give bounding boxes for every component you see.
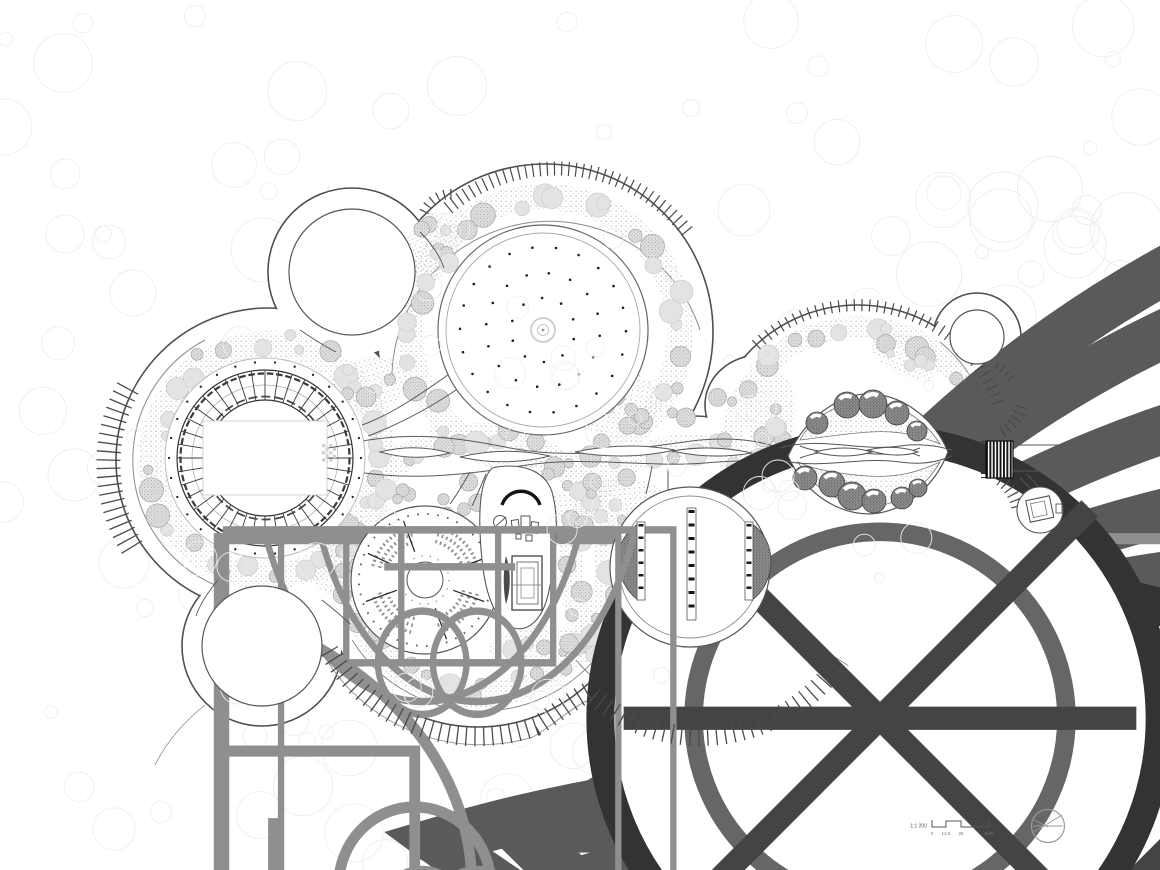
tree-canopy	[515, 201, 530, 216]
tree-canopy	[904, 360, 916, 372]
tree-canopy	[0, 99, 32, 155]
tree-canopy	[557, 12, 577, 32]
column-dot	[254, 361, 256, 363]
column-dot	[358, 437, 360, 439]
column-dot	[254, 552, 256, 554]
fountain-jet	[485, 323, 488, 326]
tree-canopy	[320, 341, 341, 362]
fountain-jet	[572, 338, 575, 341]
tree-canopy	[1112, 89, 1160, 145]
tree-canopy	[968, 172, 1038, 242]
tree-canopy	[564, 458, 574, 468]
tree-canopy	[619, 417, 636, 434]
paver	[326, 448, 329, 451]
fountain-jet	[596, 312, 599, 315]
tree-canopy	[264, 139, 299, 174]
fountain-plaza	[438, 225, 648, 435]
tree-canopy	[718, 184, 770, 236]
tree-canopy	[393, 494, 403, 504]
fountain-jet	[515, 379, 518, 382]
tree-canopy	[398, 313, 417, 332]
tree-canopy	[758, 345, 779, 366]
fountain-jet	[487, 345, 490, 348]
tree-canopy	[139, 478, 163, 502]
fountain-jet	[560, 302, 563, 305]
tree-canopy	[808, 330, 825, 347]
fountain-jet	[598, 335, 601, 338]
tree-canopy	[261, 183, 278, 200]
column-dot	[186, 400, 188, 402]
fountain-jet	[558, 383, 561, 386]
fountain-jet	[586, 293, 589, 296]
tree-canopy	[566, 609, 579, 622]
tree-canopy	[915, 355, 928, 368]
tree-canopy	[926, 16, 983, 73]
tree-canopy	[831, 325, 847, 341]
tree-canopy	[373, 93, 409, 129]
tree-canopy	[150, 801, 171, 822]
fountain-jet	[522, 303, 525, 306]
tree-canopy	[990, 38, 1039, 87]
tree-canopy	[95, 226, 111, 242]
tree-canopy	[45, 706, 57, 718]
column-dot	[360, 457, 362, 459]
tree-canopy	[417, 274, 434, 291]
column-dot	[170, 437, 172, 439]
fountain-jet	[555, 247, 558, 250]
column-dot	[342, 400, 344, 402]
paver	[329, 451, 332, 454]
fountain-jet	[462, 304, 465, 307]
column-dot	[176, 496, 178, 498]
paver	[322, 458, 325, 461]
fountain-jet	[488, 265, 491, 268]
tree-canopy	[136, 599, 153, 616]
tree-canopy	[384, 374, 395, 385]
tree-canopy	[414, 221, 430, 237]
fountain-jet	[525, 274, 528, 277]
court-apron	[203, 421, 327, 495]
column-dot	[312, 374, 314, 376]
fountain-jet	[508, 253, 511, 256]
tree-canopy	[92, 225, 126, 259]
fountain-jet	[462, 351, 465, 354]
tree-canopy	[609, 457, 620, 468]
scale-text: 1:1 200	[910, 824, 927, 830]
tree-canopy	[594, 509, 607, 522]
fountain-jet	[543, 361, 546, 364]
entrance-bridge	[986, 441, 1013, 478]
fountain-jet	[536, 385, 539, 388]
column-dot	[186, 513, 188, 515]
fountain-jet	[471, 373, 474, 376]
column-dot	[234, 366, 236, 368]
fountain-jet	[595, 392, 598, 395]
column-dot	[168, 457, 170, 459]
tree-canopy	[618, 469, 635, 486]
paver	[333, 455, 336, 458]
tree-canopy	[34, 34, 92, 92]
tree-canopy	[0, 32, 13, 46]
tree-canopy	[676, 408, 695, 427]
tree-canopy	[717, 433, 731, 447]
fountain-jet	[531, 246, 534, 249]
scale-tick-label: 25	[958, 831, 964, 836]
fountain-jet	[552, 411, 555, 414]
fountain-jet	[498, 365, 501, 368]
tree-canopy	[458, 503, 471, 516]
paver	[322, 444, 325, 447]
tree-canopy	[727, 397, 736, 406]
drawing-sheet: 1:1 200 0 12.5 25 50m	[0, 0, 1160, 870]
fountain-jet	[506, 285, 509, 288]
fountain-jet	[561, 354, 564, 357]
paver	[326, 455, 329, 458]
tree-canopy	[184, 5, 206, 27]
tree-canopy	[460, 473, 478, 491]
kiosk-pavilion	[1017, 487, 1063, 533]
tree-canopy	[428, 57, 487, 116]
fountain-jet	[569, 279, 572, 282]
tree-canopy	[254, 339, 272, 357]
tree-canopy	[437, 426, 448, 437]
tree-canopy	[1072, 0, 1133, 57]
tree-canopy	[896, 241, 961, 306]
fountain-jet	[577, 254, 580, 257]
tree-canopy	[438, 494, 449, 505]
fountain-jet	[575, 405, 578, 408]
tree-canopy	[527, 433, 544, 450]
column-dot	[294, 366, 296, 368]
tree-canopy	[808, 56, 828, 76]
tree-canopy	[597, 125, 612, 140]
paver	[329, 444, 332, 447]
tree-canopy	[1083, 141, 1097, 155]
fountain-jet	[541, 297, 544, 300]
fountain-jet	[548, 272, 551, 275]
fountain-jet	[512, 339, 515, 342]
tree-canopy	[48, 449, 100, 501]
tree-canopy	[411, 292, 434, 315]
fountain-jet	[506, 404, 509, 407]
fountain-jet	[486, 391, 489, 394]
paver	[329, 458, 332, 461]
fountain-jet	[524, 355, 527, 358]
fountain-jet	[459, 328, 462, 331]
tree-canopy	[788, 333, 802, 347]
tree-canopy	[427, 389, 450, 412]
scale-tick-label: 0	[931, 831, 934, 836]
tree-canopy	[814, 119, 859, 164]
fountain-jet	[625, 330, 628, 333]
fountain-jet	[621, 353, 624, 356]
tree-canopy	[400, 355, 415, 370]
tree-canopy	[787, 103, 808, 124]
tree-canopy	[186, 534, 203, 551]
tree-canopy	[238, 556, 258, 576]
tree-canopy	[629, 229, 642, 242]
fountain-jet	[511, 320, 514, 323]
tree-canopy	[709, 389, 727, 407]
tree-canopy	[143, 465, 153, 475]
fountain-jet	[473, 283, 476, 286]
tree-canopy	[744, 0, 799, 48]
tree-canopy	[64, 772, 94, 802]
tree-canopy	[511, 727, 531, 747]
tree-canopy	[19, 387, 66, 434]
column-dot	[328, 386, 330, 388]
paver	[333, 448, 336, 451]
tree-canopy	[146, 504, 170, 528]
tree-canopy	[872, 217, 911, 256]
tree-canopy	[672, 383, 684, 395]
tree-canopy	[881, 323, 892, 334]
column-dot	[294, 548, 296, 550]
tree-canopy	[587, 489, 597, 499]
pavilion-building	[512, 556, 542, 610]
fountain-jet	[597, 267, 600, 270]
column-dot	[358, 477, 360, 479]
tree-canopy	[1044, 216, 1106, 278]
column-dot	[216, 374, 218, 376]
tree-canopy	[645, 257, 662, 274]
tree-canopy	[1018, 157, 1083, 222]
column-dot	[200, 386, 202, 388]
column-dot	[274, 361, 276, 363]
paver	[322, 451, 325, 454]
tree-canopy	[641, 234, 665, 258]
column-dot	[352, 496, 354, 498]
tree-canopy	[542, 187, 563, 208]
tree-canopy	[73, 13, 93, 33]
column-dot	[176, 418, 178, 420]
fountain-jet	[572, 318, 575, 321]
tree-canopy	[46, 215, 84, 253]
tree-canopy	[571, 581, 592, 602]
tree-canopy	[886, 350, 894, 358]
fountain-jet	[622, 307, 625, 310]
fountain-jet	[492, 302, 495, 305]
tree-canopy	[342, 364, 353, 375]
tree-canopy	[191, 348, 203, 360]
column-dot	[342, 513, 344, 515]
tree-canopy	[597, 196, 611, 210]
tree-canopy	[766, 417, 786, 437]
tree-canopy	[268, 62, 327, 121]
tree-canopy	[1018, 261, 1044, 287]
fountain-jet	[612, 285, 615, 288]
column-dot	[352, 418, 354, 420]
tree-canopy	[212, 143, 257, 188]
scale-tick-label: 12.5	[942, 831, 951, 836]
tree-canopy	[670, 346, 690, 366]
fountain-jet	[611, 375, 614, 378]
scale-tick-label: 50m	[985, 831, 994, 836]
site-plan-drawing: 1:1 200 0 12.5 25 50m	[0, 0, 1160, 870]
tree-canopy	[42, 327, 75, 360]
tree-canopy	[362, 411, 386, 435]
tree-canopy	[537, 640, 552, 655]
tree-canopy	[915, 172, 970, 227]
tree-canopy	[93, 808, 135, 850]
tree-canopy	[356, 387, 376, 407]
tree-canopy	[927, 176, 961, 210]
tree-canopy	[110, 270, 156, 316]
tree-canopy	[683, 100, 700, 117]
tree-canopy	[285, 329, 296, 340]
tree-canopy	[1105, 51, 1120, 66]
tree-canopy	[667, 408, 677, 418]
column-dot	[200, 528, 202, 530]
column-dot	[170, 477, 172, 479]
tree-canopy	[50, 159, 80, 189]
tree-canopy	[1053, 208, 1099, 254]
fountain-jet	[529, 411, 532, 414]
column-dot	[234, 548, 236, 550]
tree-canopy	[659, 300, 682, 323]
tree-canopy	[471, 203, 496, 228]
tree-canopy	[243, 724, 267, 748]
tree-canopy	[0, 482, 23, 523]
tree-canopy	[295, 345, 304, 354]
